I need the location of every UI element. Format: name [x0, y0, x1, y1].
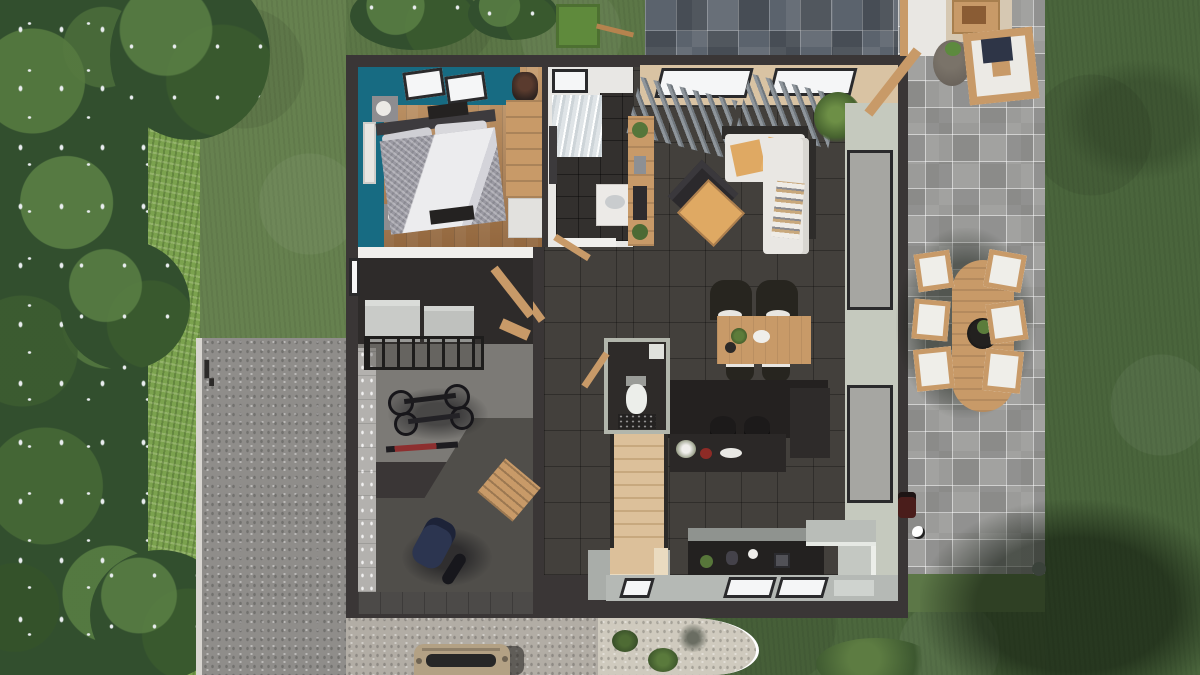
sofa-throw-blanket — [771, 181, 805, 240]
garden-bed-shrub-1 — [612, 630, 638, 652]
bedroom-cabinet-white — [508, 198, 544, 238]
kitchen-island — [670, 434, 786, 472]
bike-2 — [392, 402, 498, 448]
garage-shelving — [364, 336, 484, 370]
car-hood-line — [422, 648, 500, 651]
lounge-table-items — [962, 6, 986, 24]
terrace-rear-dark-pavers — [645, 0, 908, 57]
window-bench-horizontal — [806, 520, 876, 546]
patio-chair-right-3 — [982, 348, 1024, 394]
counter-plant — [700, 555, 713, 568]
island-flower-bouquet — [676, 440, 696, 458]
bathroom-radiator — [549, 126, 557, 184]
table-plant — [731, 328, 747, 344]
bottom-window-2 — [775, 577, 829, 598]
patio-chair-right-2 — [985, 300, 1028, 345]
wc-corner-shelf — [649, 344, 664, 359]
shower-glass — [552, 95, 602, 157]
tree-shadow-lawn-right — [1060, 60, 1200, 180]
kitchen-lower-cabinets — [688, 541, 824, 575]
dining-table — [717, 316, 811, 364]
wc-toilet — [626, 384, 647, 414]
utility-window — [349, 258, 360, 296]
bottom-panel-gray — [834, 580, 874, 596]
bar-stool-2 — [744, 416, 770, 436]
patio-chair-left-2 — [911, 299, 950, 342]
soccer-ball — [912, 526, 925, 539]
lounge-chair-navy-cushion — [981, 36, 1013, 63]
lounge-table — [952, 0, 1000, 34]
console-plant-2 — [632, 224, 648, 240]
bedroom-hanging-plant — [512, 72, 538, 102]
staircase — [610, 434, 668, 558]
counter-cup — [748, 549, 758, 559]
patio-chair-right-1 — [983, 249, 1027, 293]
kitchen-counter-low — [688, 528, 824, 541]
bottom-window-entry — [619, 578, 655, 598]
patio-chair-left-3 — [913, 346, 955, 392]
console-plant-1 — [632, 122, 648, 138]
counter-box — [774, 553, 790, 568]
bathroom-window — [552, 69, 588, 93]
bar-stool-1 — [710, 416, 736, 436]
car-mirror-left — [416, 658, 422, 664]
bedroom-skylight-1 — [402, 67, 446, 100]
living-right-window-1 — [847, 150, 893, 310]
garage-door-band — [358, 592, 533, 614]
garden-mat — [556, 4, 600, 48]
bathroom-sink — [605, 195, 625, 209]
bedroom-lamp-top — [376, 101, 391, 116]
table-white-bowl — [753, 330, 770, 343]
island-plates — [720, 448, 742, 458]
lounge-planter-plant — [945, 42, 961, 56]
garden-bed-grass-tuft — [676, 624, 710, 652]
wc-mat — [618, 414, 656, 429]
floor-plan-render — [0, 0, 1200, 675]
tree-canopy-overhang-mid — [60, 240, 190, 370]
console-candles — [634, 156, 646, 174]
kitchen-tall-cabinet — [790, 388, 830, 458]
living-right-window-2 — [847, 385, 893, 503]
sofa-cushion-1 — [730, 139, 766, 177]
console-shelf — [628, 116, 654, 246]
wc-room — [604, 338, 670, 434]
counter-kettle — [726, 551, 738, 565]
console-books — [633, 186, 647, 220]
utility-lit-wall — [358, 247, 533, 258]
tree-shadow-bottom-right — [920, 500, 1200, 675]
garage-wall-panels — [358, 348, 376, 592]
car — [414, 644, 520, 675]
garden-bed-shrub-2 — [648, 648, 678, 672]
bbq-grill — [898, 492, 916, 518]
car-windshield — [426, 654, 496, 667]
bedroom-wardrobe — [506, 100, 542, 198]
concrete-driveway — [202, 338, 346, 675]
car-mirror-right — [502, 656, 508, 662]
island-red-pot — [700, 448, 712, 459]
table-dark-pot — [725, 342, 736, 353]
bottom-window-1 — [723, 577, 777, 598]
hall-wall-left — [533, 247, 544, 615]
garden-ball-dark — [1032, 562, 1046, 576]
patio-chair-left-1 — [914, 250, 955, 293]
bedroom-skylight-2 — [444, 71, 488, 104]
bedroom-wall-art — [363, 122, 376, 184]
